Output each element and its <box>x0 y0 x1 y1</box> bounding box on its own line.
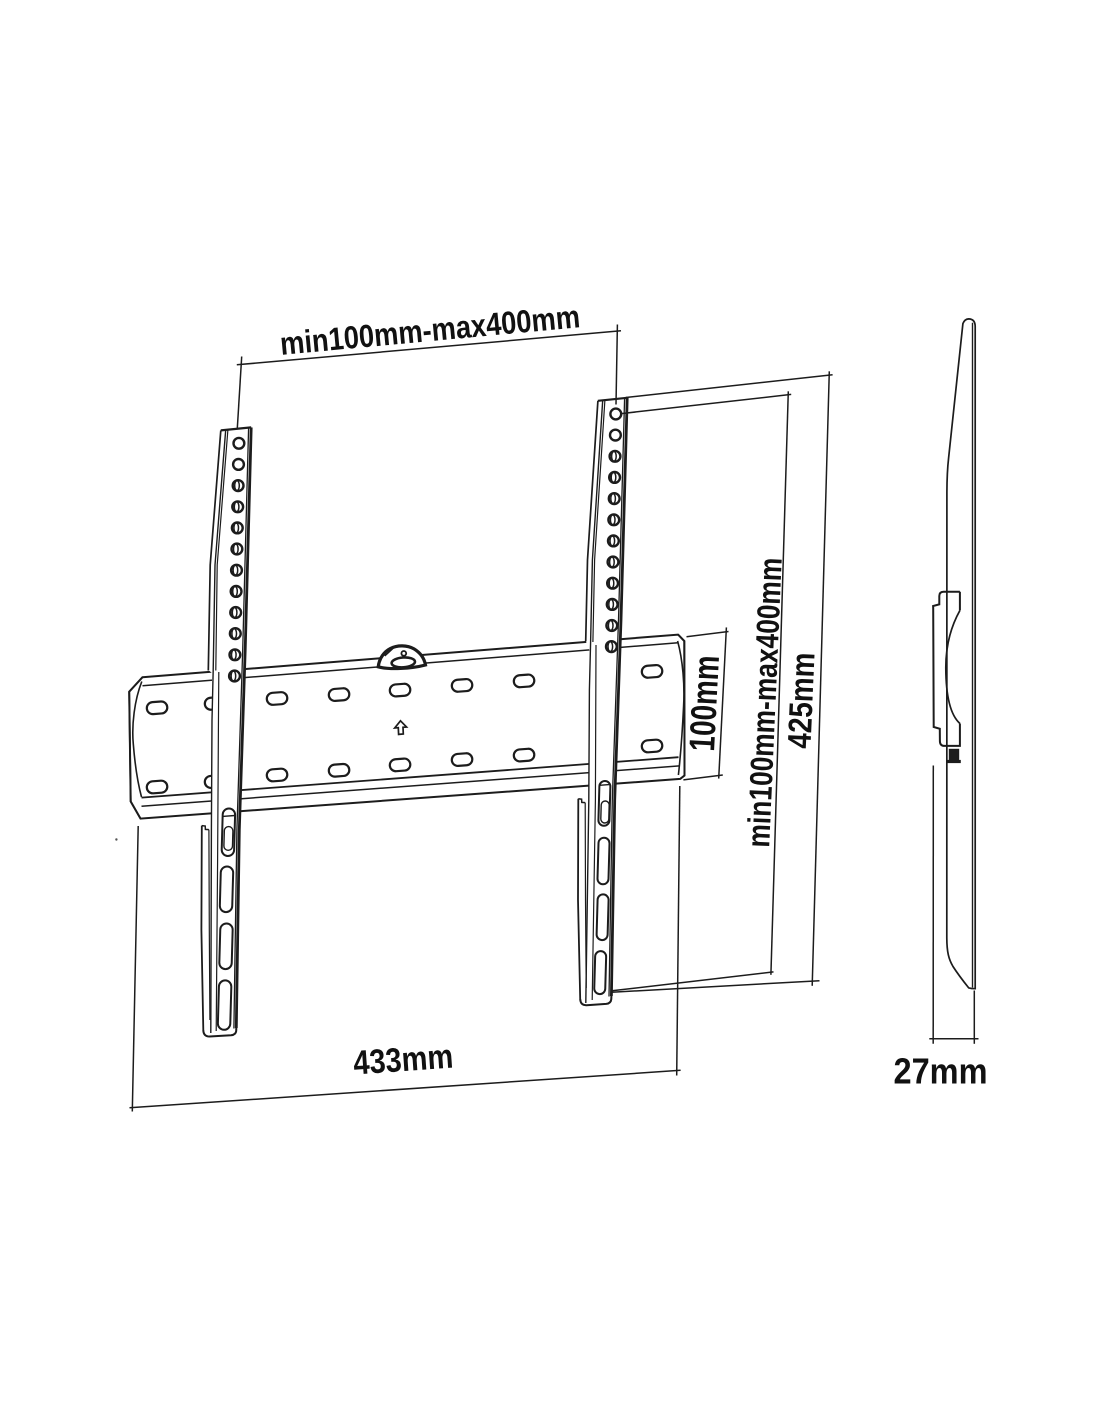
svg-text:425mm: 425mm <box>780 652 821 750</box>
svg-text:27mm: 27mm <box>894 1051 988 1092</box>
svg-text:100mm: 100mm <box>681 654 727 752</box>
svg-text:433mm: 433mm <box>352 1038 454 1083</box>
